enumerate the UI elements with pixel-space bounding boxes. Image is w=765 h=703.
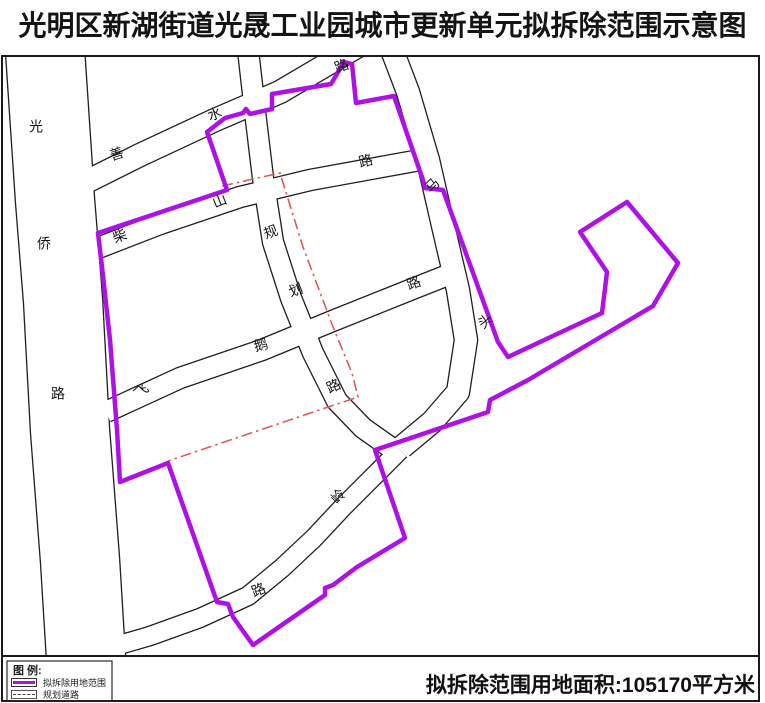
legend-item-planned-road: 规划道路 <box>11 689 79 700</box>
area-note: 拟拆除范围用地面积:105170平方米 <box>426 669 755 699</box>
road-label: 侨 <box>37 236 51 252</box>
road-label: 路 <box>51 386 65 402</box>
page: 光明区新湖街道光晟工业园城市更新单元拟拆除范围示意图 光侨路善水路柴山路马头规划… <box>0 0 765 703</box>
legend-item-label: 规划道路 <box>43 688 79 701</box>
demolition-boundary <box>98 62 678 645</box>
planned-road-swatch <box>11 690 37 699</box>
dashed-road-icon <box>13 694 35 695</box>
road-label: 光 <box>29 119 43 135</box>
legend-heading: 图 例: <box>13 662 42 678</box>
map-layers: 光侨路善水路柴山路马头规划路飞鹅路岭路 <box>29 46 678 660</box>
guangqiao-road <box>45 50 86 658</box>
demolition-boundary-swatch <box>11 678 37 687</box>
map-canvas: 光侨路善水路柴山路马头规划路飞鹅路岭路 <box>0 0 765 703</box>
road-label: 路 <box>357 151 374 170</box>
boundary-line-icon <box>13 681 35 684</box>
legend-item-demolition-boundary: 拟拆除用地范围 <box>11 677 106 688</box>
matou-road <box>392 50 466 447</box>
chaishan-road <box>80 160 420 255</box>
